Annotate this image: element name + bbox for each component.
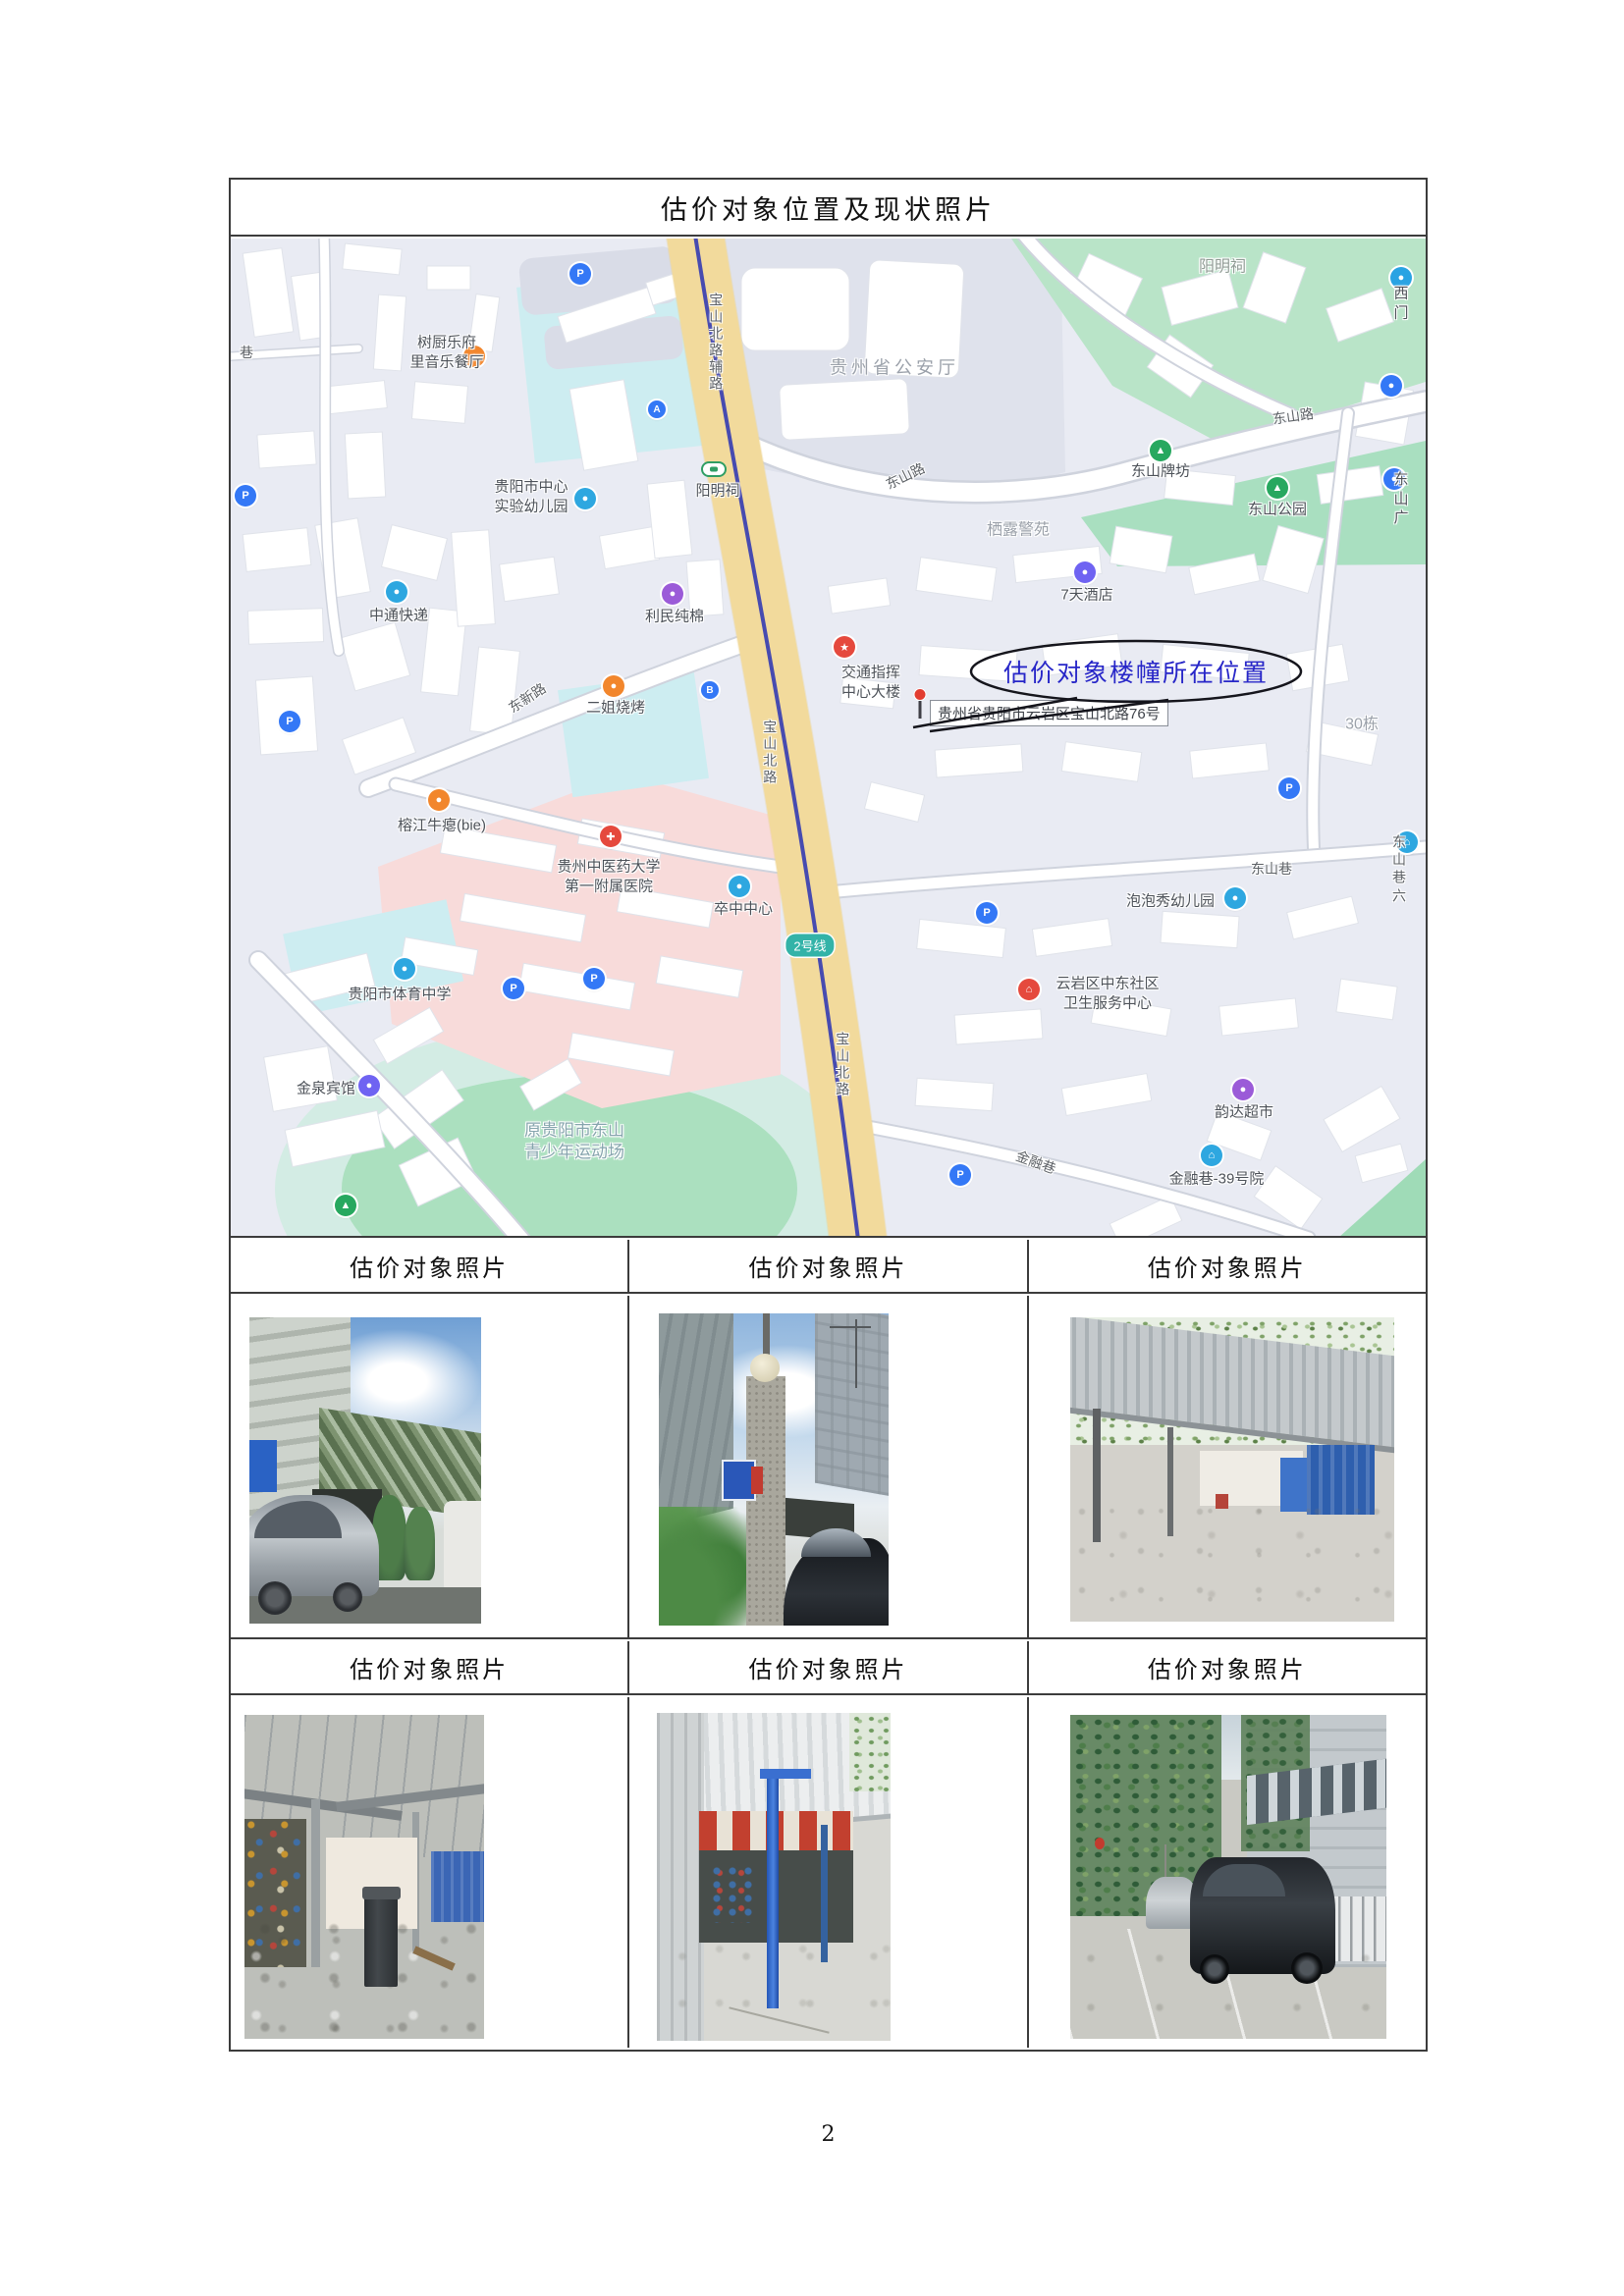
address-label: 贵州省贵阳市云岩区宝山北路76号 bbox=[930, 700, 1168, 726]
location-photo-table: 估价对象位置及现状照片 bbox=[229, 178, 1428, 2052]
page-title: 估价对象位置及现状照片 bbox=[661, 188, 996, 227]
map-label-dongshan-plaza: 东山广 bbox=[1389, 470, 1414, 528]
metro-exit-b-icon: B bbox=[701, 681, 719, 699]
bbq-icon: ● bbox=[603, 675, 624, 697]
map-label-paopao: 泡泡秀幼儿园 bbox=[1126, 891, 1215, 911]
photo-3 bbox=[1070, 1317, 1394, 1622]
photo-cell bbox=[231, 1697, 627, 2048]
photo-cell bbox=[1029, 1296, 1426, 1637]
table-title-row: 估价对象位置及现状照片 bbox=[231, 180, 1426, 237]
parking-icon: P bbox=[583, 968, 605, 989]
parking-icon: P bbox=[949, 1164, 971, 1186]
parking-icon: P bbox=[976, 902, 998, 924]
metro-exit-a-icon: A bbox=[648, 400, 666, 418]
parking-icon: P bbox=[1278, 777, 1300, 799]
parking-icon: P bbox=[235, 485, 256, 507]
map-label-traffic-center: 交通指挥 中心大楼 bbox=[841, 664, 900, 702]
map-label-dongshan-lane: 东山巷 bbox=[1251, 860, 1292, 878]
niubie-icon: ● bbox=[428, 789, 450, 811]
map-label-community-health: 云岩区中东社区 卫生服务中心 bbox=[1056, 975, 1159, 1013]
parking-icon: P bbox=[569, 263, 591, 285]
map-label-lane: 巷 bbox=[240, 344, 253, 361]
map-label-yangmingci-area: 阳明祠 bbox=[1199, 258, 1246, 279]
photo-header-row-2: 估价对象照片 估价对象照片 估价对象照片 bbox=[231, 1641, 1426, 1695]
map-label-jinrong-39: 金融巷-39号院 bbox=[1169, 1169, 1265, 1189]
map-label-dongshan-park: 东山公园 bbox=[1248, 500, 1307, 519]
limin-shop-icon: ● bbox=[662, 583, 683, 605]
kindergarten-icon: ● bbox=[574, 488, 596, 509]
photo-6 bbox=[1070, 1715, 1386, 2039]
jinrong39-icon: ⌂ bbox=[1201, 1145, 1222, 1166]
map-label-zhongtong: 中通快递 bbox=[369, 606, 428, 625]
location-map: 巷 树厨乐府 里音乐餐厅 贵阳市中心 实验幼儿园 宝山北路辅路 阳明祠 贵州省公… bbox=[231, 239, 1426, 1238]
jinquan-hotel-icon: ● bbox=[358, 1075, 380, 1096]
express-icon: ● bbox=[386, 581, 407, 603]
photo-row-2 bbox=[231, 1697, 1426, 2048]
traffic-center-icon: ★ bbox=[834, 636, 855, 658]
photo-header: 估价对象照片 bbox=[627, 1641, 1028, 1693]
photo-header: 估价对象照片 bbox=[1029, 1641, 1426, 1693]
photo-cell bbox=[231, 1296, 627, 1637]
parking-icon: P bbox=[503, 978, 524, 999]
map-label-30dong: 30栋 bbox=[1345, 716, 1379, 736]
annotation-text: 估价对象楼幢所在位置 bbox=[1003, 654, 1269, 689]
yunda-shop-icon: ● bbox=[1232, 1079, 1254, 1100]
photo-header: 估价对象照片 bbox=[1029, 1240, 1426, 1292]
health-center-icon: ⌂ bbox=[1018, 979, 1040, 1000]
map-label-stroke-center: 卒中中心 bbox=[714, 899, 773, 919]
map-label-erjie: 二姐烧烤 bbox=[586, 698, 645, 718]
map-label-stadium: 原贵阳市东山 青少年运动场 bbox=[524, 1120, 624, 1163]
stroke-center-icon: ● bbox=[729, 876, 750, 897]
photo-5 bbox=[657, 1713, 891, 2041]
sports-school-icon: ● bbox=[394, 958, 415, 980]
map-label-7days: 7天酒店 bbox=[1060, 585, 1112, 605]
map-label-kindergarten: 贵阳市中心 实验幼儿园 bbox=[494, 478, 568, 516]
map-label-yunda: 韵达超市 bbox=[1215, 1102, 1273, 1122]
map-label-tcm-hospital: 贵州中医药大学 第一附属医院 bbox=[557, 858, 660, 896]
report-page: 估价对象位置及现状照片 bbox=[0, 0, 1624, 2296]
map-label-qilu: 栖露警苑 bbox=[987, 521, 1050, 542]
photo-cell bbox=[627, 1697, 1028, 2048]
paopao-icon: ● bbox=[1224, 887, 1246, 909]
page-number: 2 bbox=[229, 2122, 1428, 2147]
map-label-baoshan-fulu: 宝山北路辅路 bbox=[707, 293, 725, 393]
photo-header-row-1: 估价对象照片 估价对象照片 估价对象照片 bbox=[231, 1240, 1426, 1294]
map-label-baoshan-mid: 宝山北路 bbox=[761, 720, 779, 786]
map-label-yangmingci-station: 阳明祠 bbox=[695, 481, 739, 501]
park-tree-icon: ▲ bbox=[1267, 477, 1288, 499]
photo-header: 估价对象照片 bbox=[231, 1240, 627, 1292]
hotel-7days-icon: ● bbox=[1074, 561, 1096, 583]
map-label-police-hq: 贵州省公安厅 bbox=[830, 356, 959, 379]
map-label-jinquan: 金泉宾馆 bbox=[297, 1079, 355, 1098]
photo-2 bbox=[659, 1313, 889, 1626]
car-service-icon: ● bbox=[1380, 375, 1402, 397]
metro-station-icon bbox=[701, 461, 727, 477]
hospital-cross-icon: ✚ bbox=[600, 826, 622, 847]
parking-icon: P bbox=[279, 711, 300, 732]
map-label-dongshan-lane6: 东山巷六 bbox=[1386, 833, 1413, 905]
map-label-rongjiang: 榕江牛瘪(bie) bbox=[398, 816, 486, 835]
photo-4 bbox=[244, 1715, 484, 2039]
paifang-tree-icon: ▲ bbox=[1150, 440, 1171, 461]
map-label-sports-school: 贵阳市体育中学 bbox=[348, 985, 451, 1004]
photo-header: 估价对象照片 bbox=[231, 1641, 627, 1693]
map-label-limin: 利民纯棉 bbox=[645, 607, 704, 626]
photo-cell bbox=[627, 1296, 1028, 1637]
map-label-west-gate: 西门 bbox=[1389, 285, 1414, 323]
map-label-restaurant: 树厨乐府 里音乐餐厅 bbox=[409, 334, 483, 372]
photo-row-1 bbox=[231, 1296, 1426, 1639]
map-label-baoshan-bottom: 宝山北路 bbox=[834, 1032, 851, 1098]
tree-icon: ▲ bbox=[335, 1195, 356, 1216]
photo-cell bbox=[1029, 1697, 1426, 2048]
photo-header: 估价对象照片 bbox=[627, 1240, 1028, 1292]
metro-line2-badge: 2号线 bbox=[785, 934, 834, 957]
photo-1 bbox=[249, 1317, 481, 1624]
address-pin-icon bbox=[914, 688, 927, 719]
map-label-paifang: 东山牌坊 bbox=[1131, 461, 1190, 481]
